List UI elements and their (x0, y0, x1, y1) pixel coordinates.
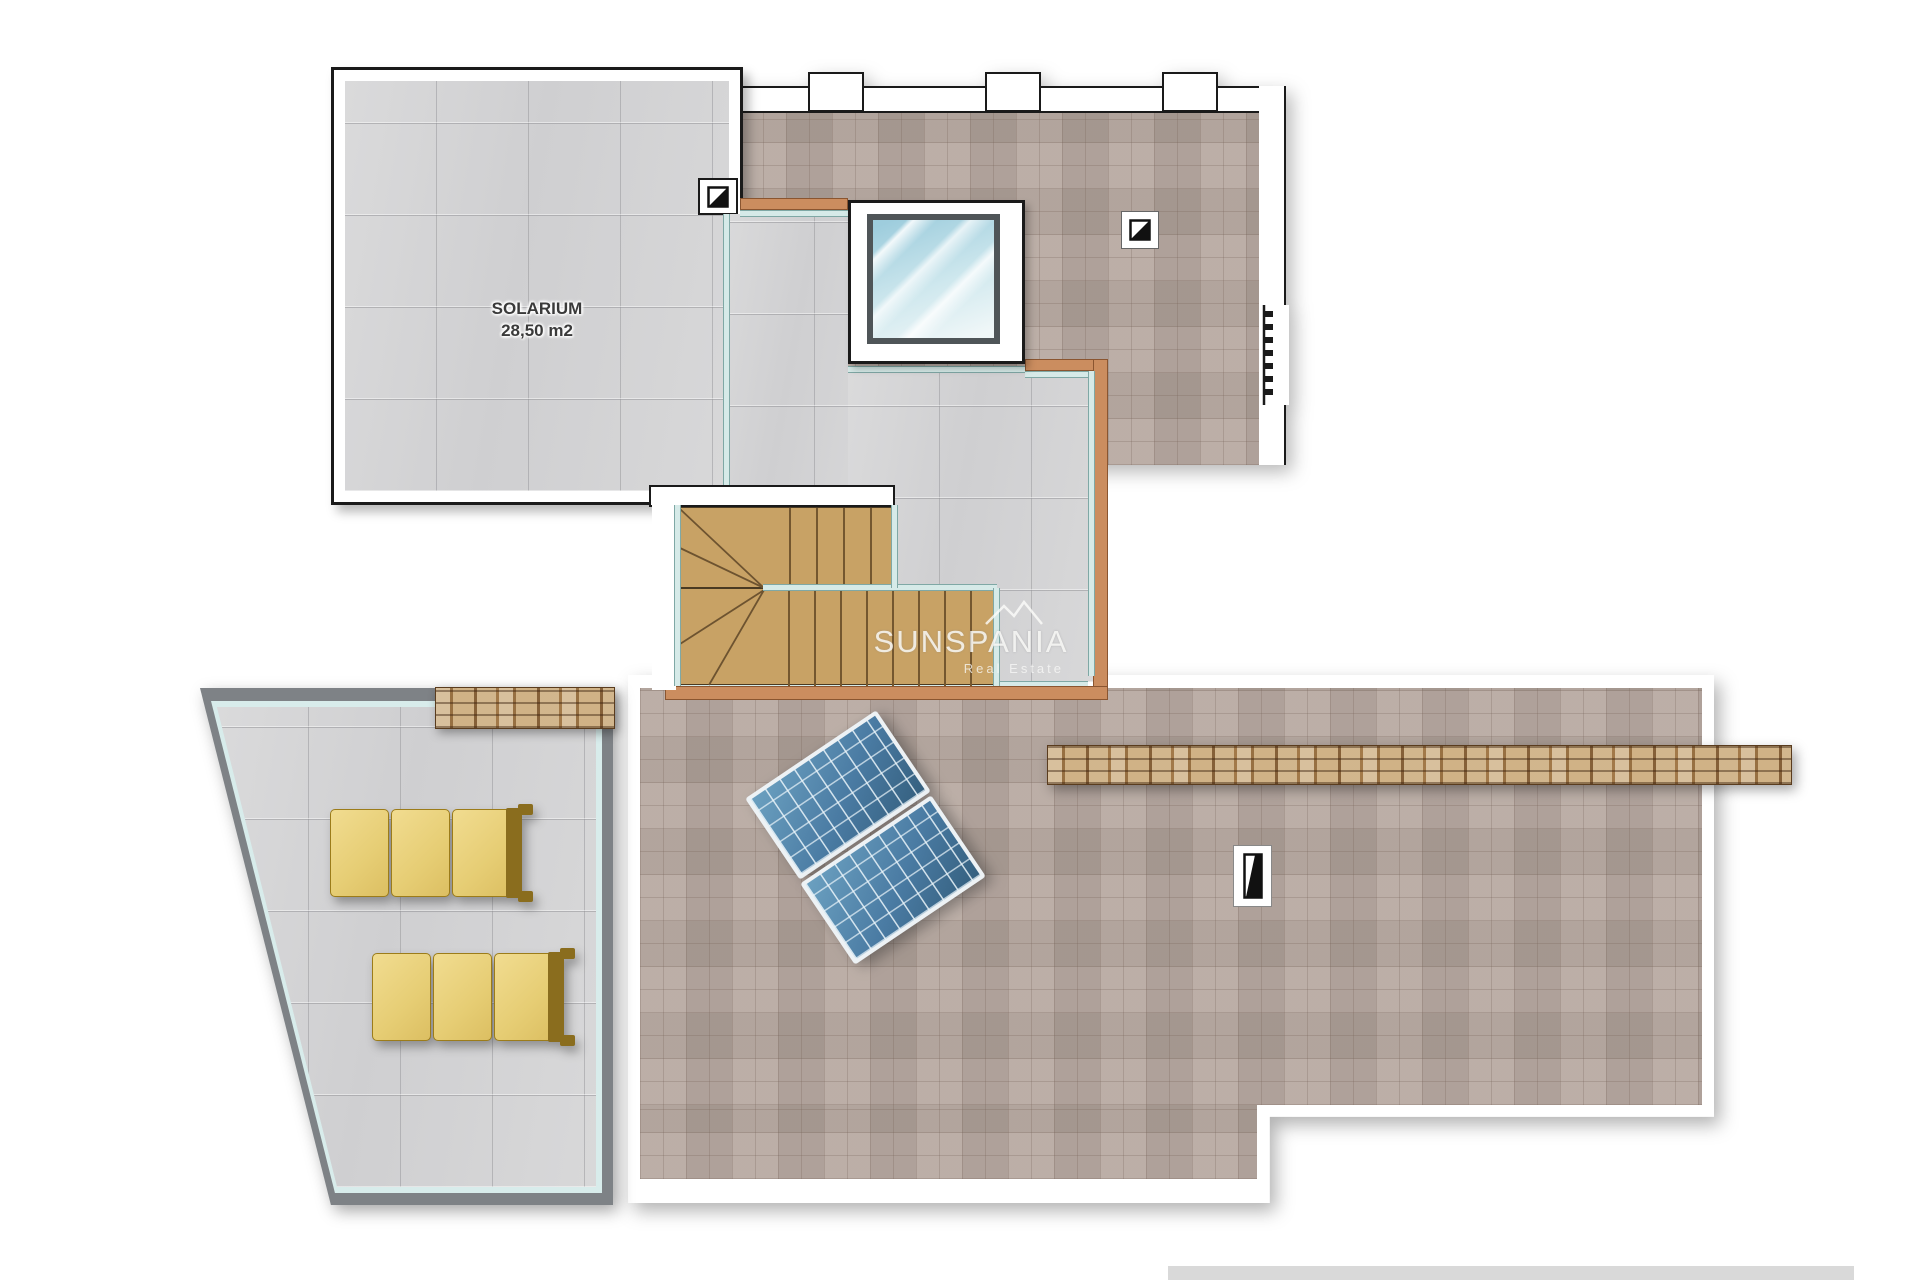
terrace-bottom-left (200, 688, 613, 1205)
chimney-icon (1233, 845, 1272, 907)
stone-wall-strip-short (435, 687, 615, 729)
sun-lounger (330, 808, 535, 898)
solarium-floor (345, 81, 729, 491)
glass-railing-line (1088, 371, 1095, 676)
bottom-bar (1168, 1266, 1854, 1280)
glass-railing-line (674, 505, 681, 686)
drain-icon (698, 178, 738, 215)
glass-railing-line (740, 210, 848, 217)
roof-ladder-icon (1259, 305, 1289, 405)
room-area: 28,50 m2 (334, 320, 740, 342)
glass-railing-line (723, 214, 730, 491)
watermark: SUNSPANIA Real Estate (856, 598, 1086, 690)
parapet-merlon (808, 72, 864, 112)
sun-lounger (372, 952, 577, 1042)
watermark-brand: SUNSPANIA (856, 624, 1086, 660)
room-name: SOLARIUM (334, 298, 740, 320)
solarium-room: SOLARIUM 28,50 m2 (331, 67, 743, 505)
stairs-upper-flight (678, 507, 897, 588)
stone-wall-strip-long (1047, 745, 1792, 785)
skylight-glass (867, 214, 1000, 344)
glass-railing-line (848, 366, 1025, 373)
parapet-merlon (985, 72, 1041, 112)
skylight-window (848, 200, 1025, 364)
stairs-top-wall (649, 485, 895, 507)
terracotta-band (740, 198, 848, 210)
glass-railing-line (1025, 371, 1093, 378)
parapet-merlon (1162, 72, 1218, 112)
terracotta-band (1093, 359, 1108, 690)
watermark-tagline: Real Estate (856, 661, 1086, 676)
parapet-right (1259, 86, 1286, 465)
glass-railing-line (891, 505, 898, 588)
stairs-side-strip (652, 505, 676, 690)
mountain-logo-icon (984, 600, 1056, 626)
drain-icon (1121, 211, 1159, 249)
solarium-label: SOLARIUM 28,50 m2 (334, 298, 740, 342)
roof-paving-lobe (640, 1105, 1257, 1179)
glass-railing-line (763, 584, 997, 591)
floor-plan: SOLARIUM 28,50 m2 (0, 0, 1920, 1280)
